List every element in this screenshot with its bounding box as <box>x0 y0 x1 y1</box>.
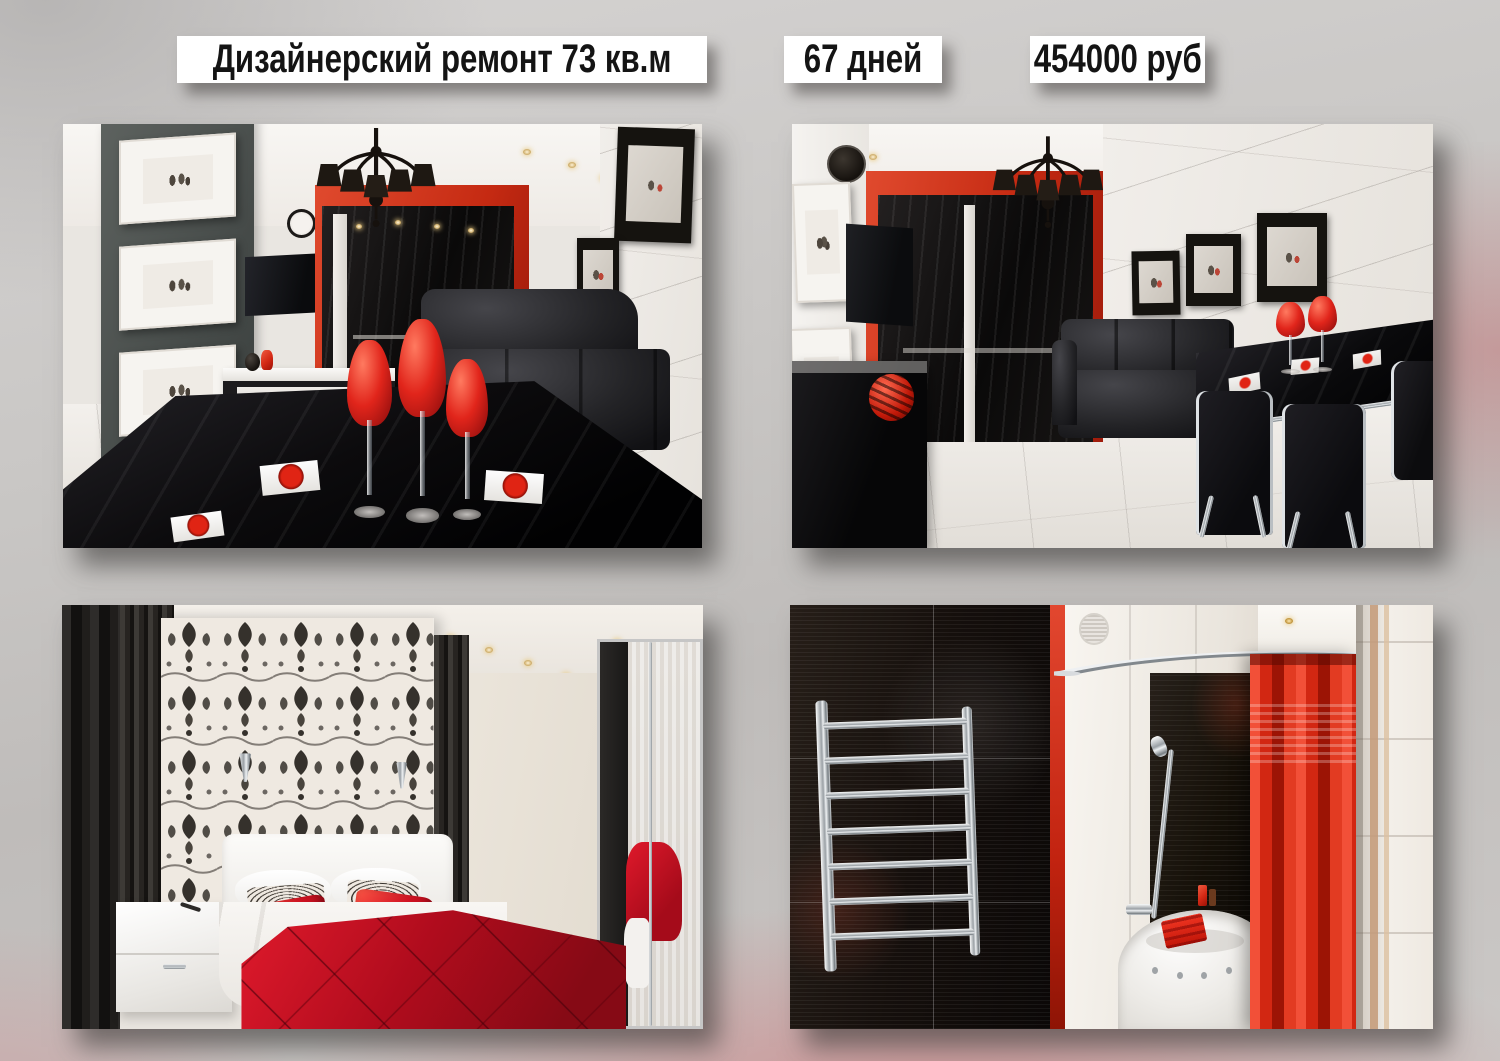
goblet-foot <box>1313 367 1333 372</box>
wall-clock <box>827 145 865 183</box>
chair-leg <box>1345 510 1358 548</box>
goblet-stem <box>367 420 372 495</box>
picture-art <box>143 260 213 310</box>
goblet-cup <box>1308 296 1337 333</box>
rail-bar <box>830 894 974 906</box>
rail-bar <box>823 718 967 730</box>
mirror-reflection-sheet <box>624 918 652 987</box>
bath-faucet <box>1126 904 1152 915</box>
picture-art <box>1138 261 1173 304</box>
counter-edge <box>903 348 1063 353</box>
nightstand <box>116 902 231 1012</box>
tub-jet <box>1177 972 1183 979</box>
kitchen-light <box>468 228 474 233</box>
picture-art <box>1194 246 1233 294</box>
tub-jet <box>1226 967 1232 974</box>
goblet-foot <box>1281 369 1301 374</box>
towel-rail <box>805 695 994 972</box>
rail-bar <box>828 859 972 871</box>
remote-control <box>180 902 201 913</box>
recessed-light <box>568 162 576 168</box>
price-text: 454000 руб <box>1033 37 1201 82</box>
dining-chair-partial <box>1391 361 1433 480</box>
goblet-cup <box>398 319 446 417</box>
goblet-foot <box>453 509 481 520</box>
red-goblet <box>446 359 488 520</box>
red-goblet <box>398 319 446 523</box>
curtain-header <box>1250 654 1356 665</box>
ceiling-spotlight <box>1285 618 1293 624</box>
wall-edge-shadow <box>1356 605 1363 1029</box>
collage-page: Дизайнерский ремонт 73 кв.м 67 дней 4540… <box>0 0 1500 1061</box>
photo-bedroom <box>62 605 703 1029</box>
dining-chair <box>1282 404 1365 548</box>
photo-bathroom <box>790 605 1433 1029</box>
shampoo-bottle <box>1198 885 1206 906</box>
goblet-foot <box>406 508 439 522</box>
title-text: Дизайнерский ремонт 73 кв.м <box>213 37 672 82</box>
picture-art <box>143 154 213 204</box>
chair-leg <box>1253 495 1266 538</box>
red-sphere-decor <box>869 374 914 421</box>
red-shower-curtain <box>1250 654 1356 1029</box>
tub-jet <box>1201 972 1207 979</box>
goblet-foot <box>354 506 384 518</box>
chandelier-icon <box>293 124 459 243</box>
red-vase <box>261 350 273 370</box>
dining-chair <box>1196 391 1273 535</box>
red-flower-placemat <box>1352 349 1381 369</box>
goblet-stem <box>465 432 470 500</box>
vent-grille <box>1079 613 1109 644</box>
drawer-line <box>116 953 231 955</box>
beige-trim-stripe <box>1384 605 1389 1029</box>
drawer-handle <box>163 964 186 970</box>
chair-leg <box>1286 510 1301 548</box>
red-goblet <box>347 340 392 518</box>
title-label: Дизайнерский ремонт 73 кв.м <box>177 36 707 83</box>
goblet-stem <box>1289 335 1292 365</box>
photo-living-room-sofa <box>792 124 1433 548</box>
shampoo-bottle <box>1209 889 1216 906</box>
rail-bar <box>826 788 970 800</box>
tv <box>846 223 913 325</box>
bw-picture <box>792 182 854 303</box>
wall-picture <box>614 127 695 244</box>
bw-picture <box>120 239 237 331</box>
red-goblet <box>1308 296 1337 372</box>
duration-label: 67 дней <box>784 36 942 83</box>
goblet-stem <box>1321 330 1324 362</box>
recessed-light <box>524 660 532 666</box>
goblet-cup <box>347 340 392 425</box>
wall-picture <box>1257 213 1328 302</box>
picture-art <box>1267 227 1318 286</box>
wall-picture <box>1186 234 1240 306</box>
red-goblet <box>1276 302 1305 374</box>
white-tile-side-wall <box>1356 605 1433 1029</box>
rail-post <box>962 706 982 956</box>
goblet-cup <box>1276 302 1305 337</box>
black-sphere-decor <box>245 353 260 371</box>
rail-bar <box>825 753 969 765</box>
goblet-stem <box>420 411 426 496</box>
rail-bar <box>831 929 975 941</box>
photo-living-room-dining <box>63 124 702 548</box>
recessed-light <box>869 154 877 160</box>
beige-trim-stripe <box>1370 605 1378 1029</box>
tub-jet <box>1152 967 1158 974</box>
sideboard-top-highlight <box>792 361 927 372</box>
red-flower-placemat <box>484 470 543 504</box>
bw-picture <box>120 133 237 225</box>
price-label: 454000 руб <box>1030 36 1205 83</box>
chair-leg <box>1198 495 1213 538</box>
black-curtain <box>62 605 120 1029</box>
sofa-armrest <box>1052 340 1078 425</box>
rail-post <box>815 701 837 973</box>
chandelier-icon <box>971 124 1125 251</box>
wardrobe-divider <box>649 642 651 1026</box>
curtain-lace-band <box>1250 699 1356 763</box>
goblet-cup <box>446 359 488 436</box>
duration-text: 67 дней <box>804 37 923 82</box>
picture-art <box>625 146 683 223</box>
rail-bar <box>827 823 971 835</box>
wall-picture <box>1131 251 1180 315</box>
red-flower-placemat <box>260 460 320 496</box>
picture-art <box>805 210 841 275</box>
